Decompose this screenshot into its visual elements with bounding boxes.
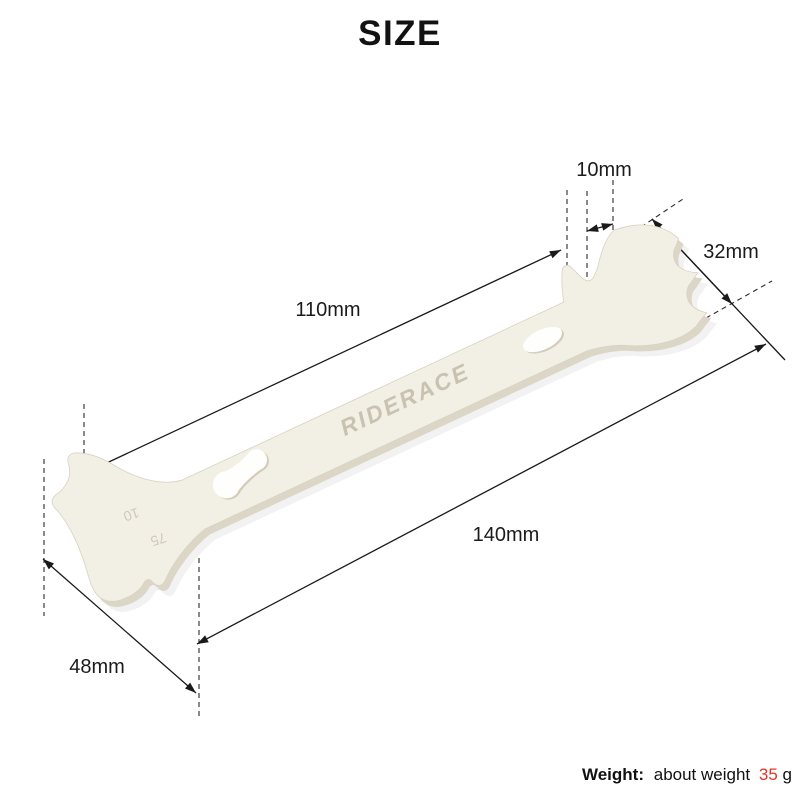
weight-value: 35 bbox=[759, 765, 778, 784]
dim-label-140mm: 140mm bbox=[473, 524, 540, 546]
weight-description: about weight bbox=[654, 765, 750, 784]
size-diagram: RIDERACE 10 75 10mm 32mm 110mm 140mm 48m… bbox=[0, 0, 800, 800]
dim-label-10mm: 10mm bbox=[576, 159, 632, 181]
dim-label-32mm: 32mm bbox=[703, 241, 759, 263]
dim-label-48mm: 48mm bbox=[69, 656, 125, 678]
dim-line-10mm bbox=[587, 224, 613, 231]
chain-checker-tool: RIDERACE 10 75 bbox=[37, 180, 732, 625]
weight-label: Weight: bbox=[582, 765, 644, 784]
dim-label-110mm: 110mm bbox=[295, 299, 360, 321]
weight-unit: g bbox=[783, 765, 792, 784]
product-size-page: SIZE bbox=[0, 0, 800, 800]
weight-note: Weight: about weight 35 g bbox=[582, 765, 792, 785]
